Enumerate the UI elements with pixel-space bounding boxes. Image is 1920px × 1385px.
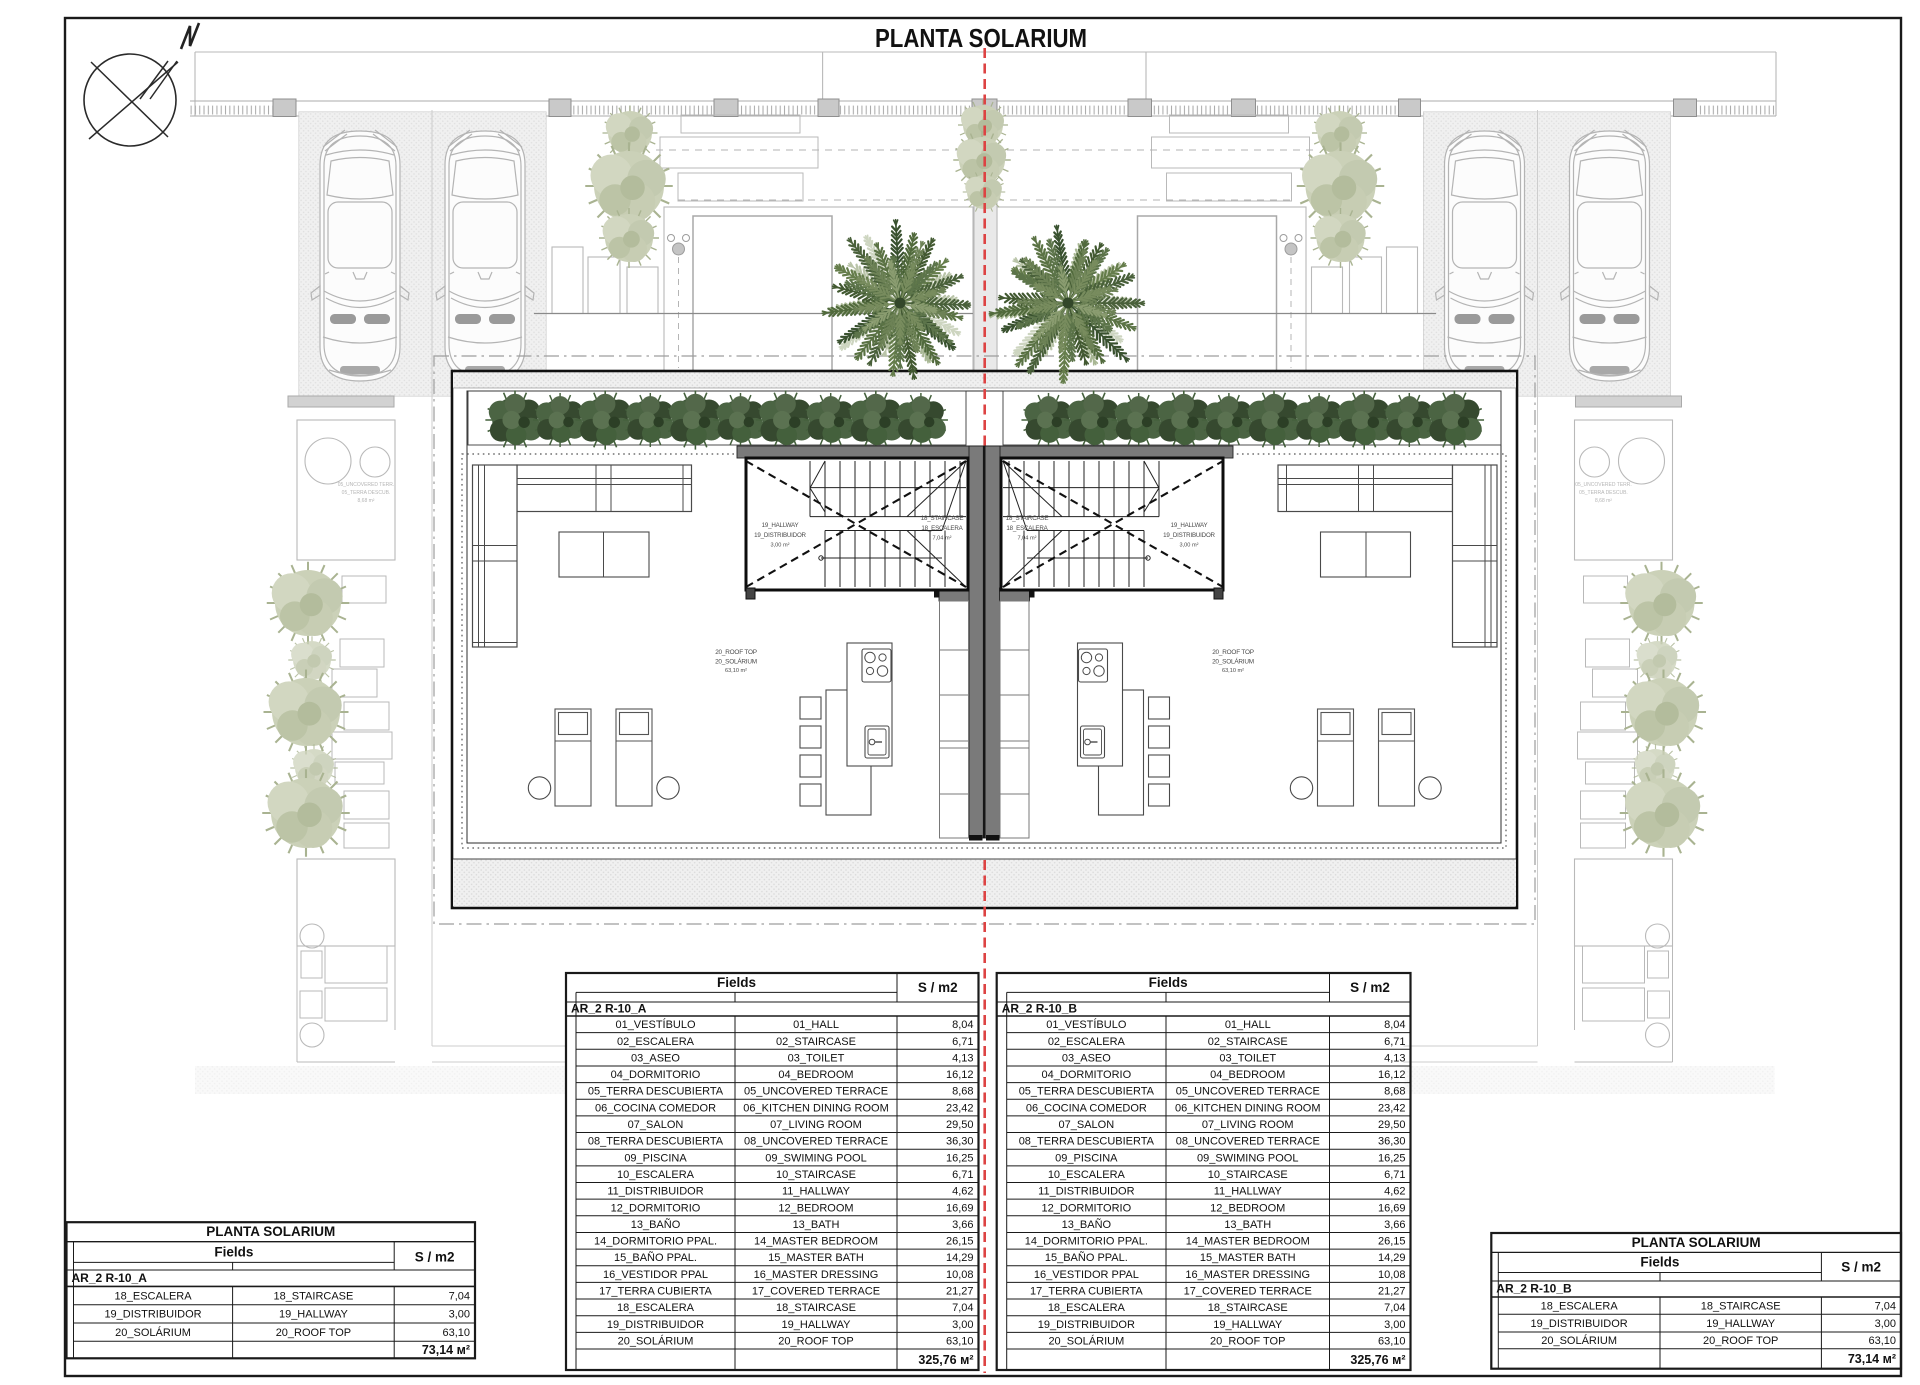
svg-text:03_ASEO: 03_ASEO (631, 1052, 680, 1064)
svg-text:10_STAIRCASE: 10_STAIRCASE (776, 1169, 856, 1181)
svg-text:16_MASTER DRESSING: 16_MASTER DRESSING (754, 1269, 879, 1281)
svg-text:11_DISTRIBUIDOR: 11_DISTRIBUIDOR (607, 1186, 703, 1198)
svg-text:Fields: Fields (1149, 975, 1188, 990)
svg-text:01_HALL: 01_HALL (1225, 1019, 1271, 1031)
svg-text:26,15: 26,15 (1378, 1236, 1406, 1248)
svg-text:03_TOILET: 03_TOILET (1219, 1052, 1276, 1064)
svg-text:12_BEDROOM: 12_BEDROOM (778, 1202, 853, 1214)
svg-text:20_ROOF TOP: 20_ROOF TOP (715, 649, 757, 656)
svg-text:Fields: Fields (214, 1244, 253, 1259)
svg-text:4,62: 4,62 (1384, 1186, 1405, 1198)
svg-text:02_ESCALERA: 02_ESCALERA (617, 1036, 695, 1048)
svg-text:12_DORMITORIO: 12_DORMITORIO (611, 1202, 701, 1214)
svg-text:03_ASEO: 03_ASEO (1062, 1052, 1111, 1064)
svg-text:13_BAÑO: 13_BAÑO (631, 1218, 681, 1231)
svg-text:73,14 м²: 73,14 м² (422, 1343, 470, 1357)
svg-text:20_ROOF TOP: 20_ROOF TOP (1210, 1335, 1285, 1347)
svg-text:19_HALLWAY: 19_HALLWAY (762, 522, 799, 529)
svg-text:29,50: 29,50 (946, 1119, 974, 1131)
svg-text:16,69: 16,69 (1378, 1202, 1406, 1214)
svg-text:17_TERRA CUBIERTA: 17_TERRA CUBIERTA (1030, 1286, 1143, 1298)
svg-text:14_MASTER BEDROOM: 14_MASTER BEDROOM (754, 1236, 878, 1248)
svg-text:02_ESCALERA: 02_ESCALERA (1048, 1036, 1126, 1048)
svg-text:AR_2 R-10_A: AR_2 R-10_A (72, 1271, 148, 1285)
svg-text:6,71: 6,71 (952, 1169, 973, 1181)
svg-text:04_DORMITORIO: 04_DORMITORIO (1042, 1069, 1132, 1081)
svg-text:3,66: 3,66 (952, 1219, 973, 1231)
svg-text:7,04 m²: 7,04 m² (933, 536, 952, 542)
svg-text:8,68: 8,68 (1384, 1086, 1405, 1098)
svg-text:19_DISTRIBUIDOR: 19_DISTRIBUIDOR (104, 1309, 201, 1321)
svg-text:05_UNCOVERED TERRACE: 05_UNCOVERED TERRACE (744, 1086, 888, 1098)
svg-text:21,27: 21,27 (946, 1286, 974, 1298)
svg-text:7,04: 7,04 (952, 1302, 973, 1314)
svg-text:20_ROOF TOP: 20_ROOF TOP (1212, 649, 1254, 656)
svg-text:20_ROOF TOP: 20_ROOF TOP (778, 1335, 853, 1347)
svg-text:17_COVERED TERRACE: 17_COVERED TERRACE (752, 1286, 880, 1298)
svg-text:8,68 m²: 8,68 m² (1595, 498, 1612, 504)
svg-text:05_TERRA DESCUB.: 05_TERRA DESCUB. (1579, 490, 1628, 496)
svg-text:19_HALLWAY: 19_HALLWAY (782, 1319, 852, 1331)
svg-text:63,10 m²: 63,10 m² (1222, 668, 1244, 674)
svg-text:19_HALLWAY: 19_HALLWAY (279, 1309, 349, 1321)
svg-text:7,04: 7,04 (1875, 1300, 1896, 1312)
svg-text:16_VESTIDOR PPAL: 16_VESTIDOR PPAL (1034, 1269, 1139, 1281)
svg-text:07_LIVING ROOM: 07_LIVING ROOM (1202, 1119, 1294, 1131)
svg-text:20_SOLÁRIUM: 20_SOLÁRIUM (1212, 657, 1254, 666)
svg-text:06_KITCHEN DINING ROOM: 06_KITCHEN DINING ROOM (1175, 1102, 1320, 1114)
svg-text:3,00: 3,00 (449, 1309, 470, 1321)
svg-text:08_UNCOVERED TERRACE: 08_UNCOVERED TERRACE (1176, 1136, 1320, 1148)
svg-text:01_VESTÍBULO: 01_VESTÍBULO (615, 1018, 696, 1031)
svg-text:AR_2 R-10_B: AR_2 R-10_B (1496, 1282, 1572, 1296)
svg-text:07_SALON: 07_SALON (628, 1119, 684, 1131)
svg-text:18_STAIRCASE: 18_STAIRCASE (273, 1290, 353, 1302)
svg-text:AR_2 R-10_B: AR_2 R-10_B (1002, 1002, 1078, 1016)
svg-text:05_UNCOVERED TERRACE: 05_UNCOVERED TERRACE (1176, 1086, 1320, 1098)
svg-text:18_ESCALERA: 18_ESCALERA (1006, 525, 1048, 532)
svg-text:04_DORMITORIO: 04_DORMITORIO (611, 1069, 701, 1081)
svg-text:01_VESTÍBULO: 01_VESTÍBULO (1046, 1018, 1127, 1031)
svg-text:06_COCINA COMEDOR: 06_COCINA COMEDOR (1026, 1102, 1147, 1114)
svg-text:12_DORMITORIO: 12_DORMITORIO (1042, 1202, 1132, 1214)
svg-text:6,71: 6,71 (1384, 1036, 1405, 1048)
svg-text:6,71: 6,71 (1384, 1169, 1405, 1181)
svg-text:08_TERRA DESCUBIERTA: 08_TERRA DESCUBIERTA (1019, 1136, 1155, 1148)
svg-text:06_COCINA COMEDOR: 06_COCINA COMEDOR (595, 1102, 716, 1114)
svg-text:19_DISTRIBUIDOR: 19_DISTRIBUIDOR (1038, 1319, 1135, 1331)
svg-text:21,27: 21,27 (1378, 1286, 1406, 1298)
svg-text:3,00: 3,00 (1875, 1318, 1896, 1330)
svg-text:4,13: 4,13 (952, 1052, 973, 1064)
svg-text:15_BAÑO PPAL.: 15_BAÑO PPAL. (1045, 1251, 1128, 1264)
svg-text:63,10: 63,10 (1378, 1335, 1406, 1347)
svg-text:Fields: Fields (1640, 1255, 1679, 1270)
svg-text:10,08: 10,08 (1378, 1269, 1406, 1281)
svg-text:20_SOLÁRIUM: 20_SOLÁRIUM (115, 1326, 191, 1339)
svg-text:15_BAÑO PPAL.: 15_BAÑO PPAL. (614, 1251, 697, 1264)
svg-text:20_SOLÁRIUM: 20_SOLÁRIUM (1541, 1334, 1617, 1347)
svg-text:05_TERRA DESCUBIERTA: 05_TERRA DESCUBIERTA (1019, 1086, 1155, 1098)
svg-text:14_MASTER BEDROOM: 14_MASTER BEDROOM (1186, 1236, 1310, 1248)
svg-text:S / m2: S / m2 (1350, 980, 1390, 995)
svg-text:14_DORMITORIO PPAL.: 14_DORMITORIO PPAL. (594, 1236, 717, 1248)
svg-text:16_MASTER DRESSING: 16_MASTER DRESSING (1185, 1269, 1310, 1281)
svg-text:4,62: 4,62 (952, 1186, 973, 1198)
svg-text:23,42: 23,42 (946, 1102, 974, 1114)
svg-text:17_TERRA CUBIERTA: 17_TERRA CUBIERTA (599, 1286, 712, 1298)
svg-text:PLANTA SOLARIUM: PLANTA SOLARIUM (1632, 1235, 1761, 1250)
svg-text:8,04: 8,04 (1384, 1019, 1405, 1031)
svg-text:18_STAIRCASE: 18_STAIRCASE (921, 515, 964, 522)
svg-text:16,12: 16,12 (946, 1069, 974, 1081)
svg-text:63,10: 63,10 (442, 1327, 470, 1339)
svg-text:19_HALLWAY: 19_HALLWAY (1706, 1318, 1776, 1330)
svg-text:8,04: 8,04 (952, 1019, 973, 1031)
svg-text:20_SOLÁRIUM: 20_SOLÁRIUM (1048, 1334, 1124, 1347)
svg-text:07_SALON: 07_SALON (1059, 1119, 1115, 1131)
svg-text:20_ROOF TOP: 20_ROOF TOP (1703, 1335, 1778, 1347)
svg-text:63,10: 63,10 (946, 1335, 974, 1347)
svg-text:11_HALLWAY: 11_HALLWAY (782, 1186, 851, 1198)
svg-text:63,10: 63,10 (1868, 1335, 1896, 1347)
svg-text:04_BEDROOM: 04_BEDROOM (778, 1069, 853, 1081)
svg-text:26,15: 26,15 (946, 1236, 974, 1248)
svg-text:3,00 m²: 3,00 m² (771, 543, 790, 549)
svg-text:01_HALL: 01_HALL (793, 1019, 839, 1031)
svg-text:03_TOILET: 03_TOILET (788, 1052, 845, 1064)
svg-text:18_STAIRCASE: 18_STAIRCASE (1208, 1302, 1288, 1314)
svg-text:16,69: 16,69 (946, 1202, 974, 1214)
svg-text:S / m2: S / m2 (1841, 1260, 1881, 1275)
svg-text:S / m2: S / m2 (918, 980, 958, 995)
svg-text:11_DISTRIBUIDOR: 11_DISTRIBUIDOR (1038, 1186, 1134, 1198)
svg-text:16_VESTIDOR PPAL: 16_VESTIDOR PPAL (603, 1269, 708, 1281)
svg-text:3,66: 3,66 (1384, 1219, 1405, 1231)
svg-text:09_PISCINA: 09_PISCINA (1055, 1152, 1118, 1164)
svg-text:19_DISTRIBUIDOR: 19_DISTRIBUIDOR (1531, 1318, 1628, 1330)
svg-text:06_KITCHEN DINING ROOM: 06_KITCHEN DINING ROOM (743, 1102, 888, 1114)
svg-text:Fields: Fields (717, 975, 756, 990)
svg-text:05_UNCOVERED TERR.: 05_UNCOVERED TERR. (338, 482, 395, 488)
svg-text:10_STAIRCASE: 10_STAIRCASE (1208, 1169, 1288, 1181)
svg-text:3,00: 3,00 (952, 1319, 973, 1331)
svg-text:14,29: 14,29 (946, 1252, 974, 1264)
svg-text:13_BATH: 13_BATH (793, 1219, 840, 1231)
svg-text:3,00: 3,00 (1384, 1319, 1405, 1331)
svg-text:19_DISTRIBUIDOR: 19_DISTRIBUIDOR (754, 532, 806, 539)
svg-text:29,50: 29,50 (1378, 1119, 1406, 1131)
svg-text:16,25: 16,25 (1378, 1152, 1406, 1164)
svg-text:02_STAIRCASE: 02_STAIRCASE (776, 1036, 856, 1048)
svg-text:23,42: 23,42 (1378, 1102, 1406, 1114)
svg-text:73,14 м²: 73,14 м² (1848, 1352, 1896, 1366)
svg-text:17_COVERED TERRACE: 17_COVERED TERRACE (1184, 1286, 1312, 1298)
svg-text:AR_2 R-10_A: AR_2 R-10_A (571, 1002, 647, 1016)
svg-text:07_LIVING ROOM: 07_LIVING ROOM (770, 1119, 862, 1131)
svg-text:S / m2: S / m2 (415, 1249, 455, 1264)
svg-text:36,30: 36,30 (1378, 1136, 1406, 1148)
svg-text:15_MASTER BATH: 15_MASTER BATH (768, 1252, 864, 1264)
svg-text:20_SOLÁRIUM: 20_SOLÁRIUM (618, 1334, 694, 1347)
svg-text:3,00 m²: 3,00 m² (1180, 543, 1199, 549)
svg-text:18_STAIRCASE: 18_STAIRCASE (1006, 515, 1049, 522)
svg-text:11_HALLWAY: 11_HALLWAY (1214, 1186, 1283, 1198)
svg-text:18_ESCALERA: 18_ESCALERA (115, 1290, 193, 1302)
svg-text:19_HALLWAY: 19_HALLWAY (1171, 522, 1208, 529)
svg-text:PLANTA SOLARIUM: PLANTA SOLARIUM (875, 23, 1087, 53)
svg-text:7,04: 7,04 (449, 1290, 470, 1302)
svg-text:8,68: 8,68 (952, 1086, 973, 1098)
svg-text:10_ESCALERA: 10_ESCALERA (1048, 1169, 1126, 1181)
svg-text:09_SWIMING POOL: 09_SWIMING POOL (765, 1152, 866, 1164)
svg-text:18_STAIRCASE: 18_STAIRCASE (776, 1302, 856, 1314)
svg-text:36,30: 36,30 (946, 1136, 974, 1148)
svg-text:18_ESCALERA: 18_ESCALERA (617, 1302, 695, 1314)
svg-text:15_MASTER BATH: 15_MASTER BATH (1200, 1252, 1296, 1264)
svg-text:08_UNCOVERED TERRACE: 08_UNCOVERED TERRACE (744, 1136, 888, 1148)
svg-text:63,10 m²: 63,10 m² (725, 668, 747, 674)
svg-text:8,68 m²: 8,68 m² (358, 498, 375, 504)
svg-text:16,25: 16,25 (946, 1152, 974, 1164)
svg-text:16,12: 16,12 (1378, 1069, 1406, 1081)
svg-text:19_DISTRIBUIDOR: 19_DISTRIBUIDOR (1163, 532, 1215, 539)
svg-text:325,76 м²: 325,76 м² (918, 1353, 973, 1367)
svg-text:08_TERRA DESCUBIERTA: 08_TERRA DESCUBIERTA (588, 1136, 724, 1148)
svg-text:7,04 m²: 7,04 m² (1018, 536, 1037, 542)
svg-text:14_DORMITORIO PPAL.: 14_DORMITORIO PPAL. (1025, 1236, 1148, 1248)
svg-text:18_ESCALERA: 18_ESCALERA (921, 525, 963, 532)
svg-text:19_DISTRIBUIDOR: 19_DISTRIBUIDOR (607, 1319, 704, 1331)
svg-text:7,04: 7,04 (1384, 1302, 1405, 1314)
svg-text:10,08: 10,08 (946, 1269, 974, 1281)
svg-text:09_PISCINA: 09_PISCINA (624, 1152, 687, 1164)
svg-text:PLANTA SOLARIUM: PLANTA SOLARIUM (206, 1224, 335, 1239)
svg-text:18_ESCALERA: 18_ESCALERA (1541, 1300, 1619, 1312)
svg-text:02_STAIRCASE: 02_STAIRCASE (1208, 1036, 1288, 1048)
svg-text:18_STAIRCASE: 18_STAIRCASE (1701, 1300, 1781, 1312)
svg-text:13_BAÑO: 13_BAÑO (1062, 1218, 1112, 1231)
svg-text:4,13: 4,13 (1384, 1052, 1405, 1064)
svg-text:13_BATH: 13_BATH (1224, 1219, 1271, 1231)
svg-text:10_ESCALERA: 10_ESCALERA (617, 1169, 695, 1181)
svg-text:09_SWIMING POOL: 09_SWIMING POOL (1197, 1152, 1298, 1164)
svg-text:325,76 м²: 325,76 м² (1350, 1353, 1405, 1367)
svg-text:04_BEDROOM: 04_BEDROOM (1210, 1069, 1285, 1081)
svg-text:20_ROOF TOP: 20_ROOF TOP (276, 1327, 351, 1339)
svg-text:20_SOLÁRIUM: 20_SOLÁRIUM (715, 657, 757, 666)
svg-text:05_TERRA DESCUBIERTA: 05_TERRA DESCUBIERTA (588, 1086, 724, 1098)
svg-text:6,71: 6,71 (952, 1036, 973, 1048)
svg-text:18_ESCALERA: 18_ESCALERA (1048, 1302, 1126, 1314)
svg-text:05_TERRA DESCUB.: 05_TERRA DESCUB. (342, 490, 391, 496)
svg-text:12_BEDROOM: 12_BEDROOM (1210, 1202, 1285, 1214)
svg-text:19_HALLWAY: 19_HALLWAY (1213, 1319, 1283, 1331)
svg-text:14,29: 14,29 (1378, 1252, 1406, 1264)
svg-text:05_UNCOVERED TERR.: 05_UNCOVERED TERR. (1575, 482, 1632, 488)
